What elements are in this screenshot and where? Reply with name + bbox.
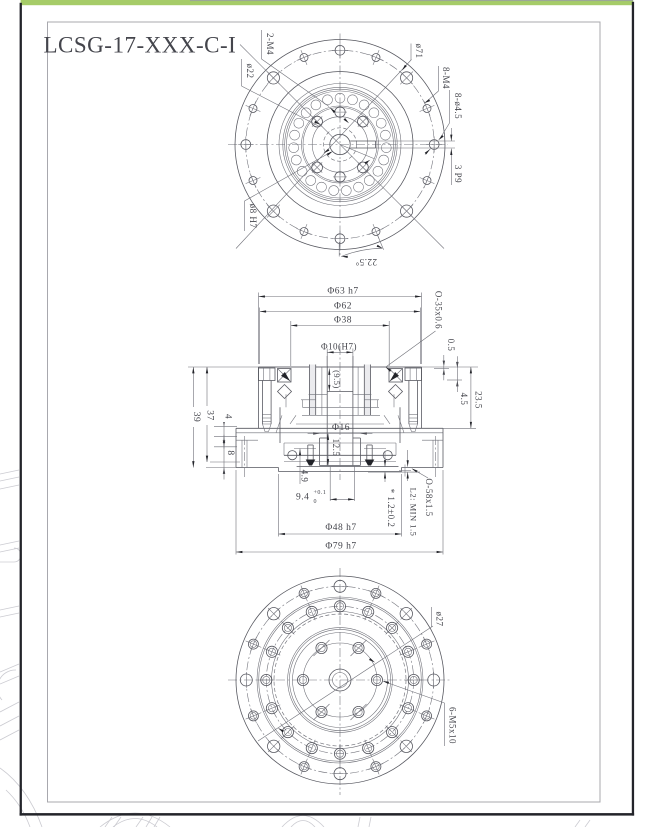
svg-text:O-58x1.5: O-58x1.5 <box>424 478 434 516</box>
svg-text:37: 37 <box>205 410 215 421</box>
svg-text:8: 8 <box>225 450 235 455</box>
svg-text:O-35x0.6: O-35x0.6 <box>434 291 444 329</box>
svg-text:8-ø4.5: 8-ø4.5 <box>453 93 463 119</box>
svg-text:8-M4: 8-M4 <box>441 67 451 89</box>
svg-text:Φ62: Φ62 <box>334 302 352 312</box>
svg-text:L2: MIN 1.5: L2: MIN 1.5 <box>409 488 419 537</box>
svg-text:23.5: 23.5 <box>474 391 484 409</box>
svg-text:Φ79 h7: Φ79 h7 <box>325 542 356 552</box>
svg-text:12.5: 12.5 <box>331 439 341 457</box>
svg-text:(9.5): (9.5) <box>332 370 342 389</box>
svg-text:Φ10(H7): Φ10(H7) <box>321 341 357 351</box>
svg-text:ø71: ø71 <box>414 44 424 59</box>
svg-text:LCSG-17-XXX-C-I: LCSG-17-XXX-C-I <box>44 33 237 58</box>
svg-text:9.4: 9.4 <box>296 493 309 503</box>
svg-text:4.5: 4.5 <box>459 393 469 406</box>
svg-text:3 P9: 3 P9 <box>453 165 463 183</box>
svg-text:+0.1: +0.1 <box>314 490 327 496</box>
svg-text:Φ48 h7: Φ48 h7 <box>325 523 356 533</box>
svg-text:6-M5x10: 6-M5x10 <box>448 707 458 744</box>
svg-text:22.5°: 22.5° <box>355 257 377 267</box>
svg-text:ø22: ø22 <box>245 64 255 79</box>
svg-text:4.9: 4.9 <box>300 470 310 483</box>
svg-text:ø8 H7: ø8 H7 <box>248 204 258 229</box>
svg-text:ø27: ø27 <box>435 612 445 627</box>
svg-text:4: 4 <box>223 414 233 419</box>
svg-text:39: 39 <box>191 412 201 423</box>
svg-text:2-M4: 2-M4 <box>265 33 275 55</box>
svg-text:Φ63 h7: Φ63 h7 <box>327 287 358 297</box>
svg-text:* 1.2±0.2: * 1.2±0.2 <box>386 489 396 528</box>
svg-text:Φ38: Φ38 <box>334 316 352 326</box>
svg-text:0.5: 0.5 <box>446 339 456 352</box>
svg-text:Φ16: Φ16 <box>332 423 350 433</box>
svg-text:0: 0 <box>314 499 318 505</box>
